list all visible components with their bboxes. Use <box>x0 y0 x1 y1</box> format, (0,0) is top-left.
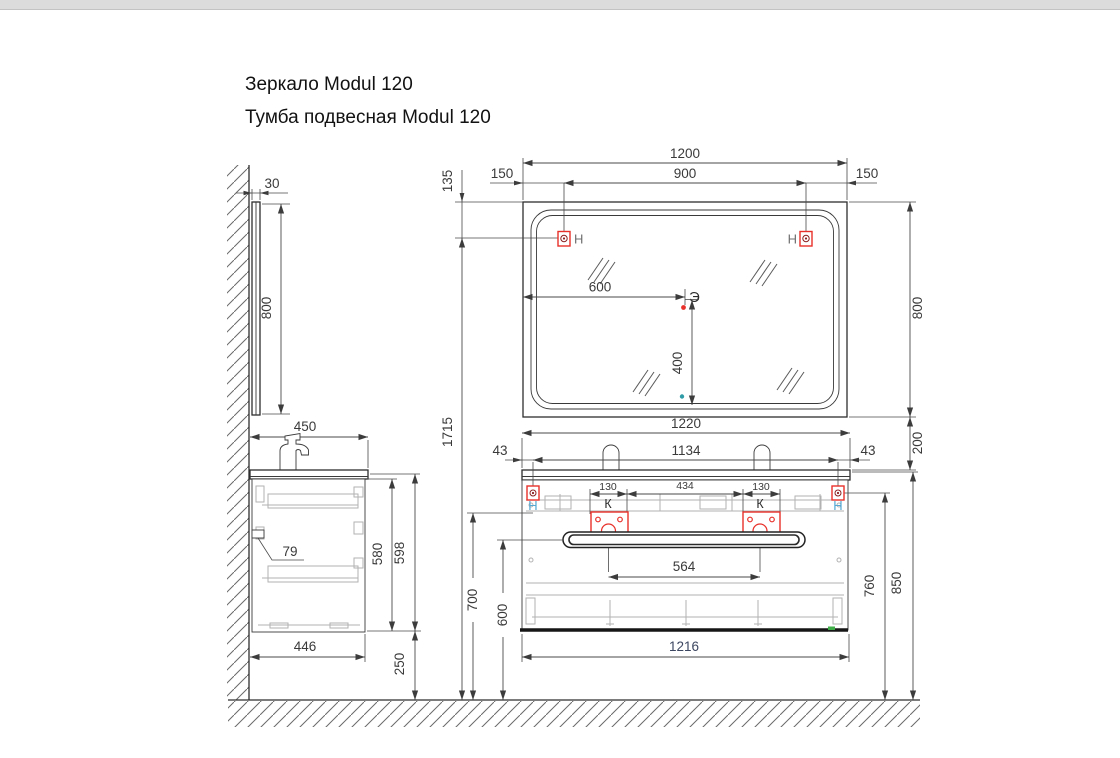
drain-left-label: К <box>604 497 612 511</box>
dim-vanity-inner-height: 580 <box>370 543 385 566</box>
faucet-hole-right <box>754 445 770 470</box>
dim-drain-right-width: 130 <box>752 481 770 493</box>
faucet-silhouette <box>280 434 309 471</box>
dim-mirror-to-vanity-gap: 200 <box>910 432 925 455</box>
dim-total-height: 1715 <box>440 417 455 447</box>
dim-vanity-depth: 450 <box>294 419 317 434</box>
wall-section <box>227 165 249 700</box>
dim-mirror-thickness: 30 <box>264 176 279 191</box>
mirror-hanger-left: Н <box>455 183 583 247</box>
dim-drain-left-width: 130 <box>599 481 617 493</box>
mirror-hanger-left-label: Н <box>574 232 583 247</box>
dim-floor-clearance: 250 <box>392 653 407 676</box>
vanity-front-view: Н Н 1220 43 1134 43 130 434 <box>465 416 918 700</box>
dim-wall-bracket-offset: 79 <box>282 544 297 559</box>
dim-mirror-margin-right: 150 <box>856 166 879 181</box>
dim-hanger-height-right: 760 <box>862 575 877 598</box>
sensor-dot <box>680 394 684 398</box>
vanity-hanger-left-label: Н <box>528 498 537 513</box>
power-point-label: Э <box>689 289 700 306</box>
dim-mirror-width: 1200 <box>670 146 700 161</box>
faucet-hole-left <box>603 445 619 470</box>
power-dot <box>681 305 686 310</box>
dim-mirror-margin-left: 150 <box>491 166 514 181</box>
dim-mirror-center-offset-y: 400 <box>670 352 685 375</box>
dim-handle-height: 600 <box>495 604 510 627</box>
green-mark <box>828 627 835 631</box>
dim-hanger-height-left: 700 <box>465 589 480 612</box>
dim-vanity-bottom-depth: 446 <box>294 639 317 654</box>
dim-vanity-width: 1216 <box>669 639 699 654</box>
dim-vanity-margin-left: 43 <box>492 443 507 458</box>
dim-drain-spacing: 434 <box>676 480 694 492</box>
dim-mirror-top-to-hanger: 135 <box>440 170 455 193</box>
total-height-dim: 1715 <box>440 238 462 700</box>
dim-mirror-hanger-span: 900 <box>674 166 697 181</box>
dim-mirror-side-height: 800 <box>259 297 274 320</box>
vanity-hanger-right-label: Н <box>833 498 842 513</box>
vanity-side-view: 450 79 580 <box>250 419 421 700</box>
dim-vanity-hanger-span: 1134 <box>671 443 701 458</box>
mirror-hanger-right-label: Н <box>788 232 797 247</box>
dim-mirror-center-offset-x: 600 <box>589 280 612 295</box>
dim-mirror-height: 800 <box>910 297 925 320</box>
dim-vanity-top-width: 1220 <box>671 416 701 431</box>
technical-drawing: 30 800 450 <box>0 0 1120 758</box>
floor-section <box>228 700 920 727</box>
drain-right-label: К <box>756 497 764 511</box>
dim-vanity-side-height: 598 <box>392 542 407 565</box>
dim-drain-center-span: 564 <box>673 559 696 574</box>
handle <box>563 532 805 548</box>
dim-vanity-top-height: 850 <box>889 572 904 595</box>
dim-vanity-margin-right: 43 <box>860 443 875 458</box>
